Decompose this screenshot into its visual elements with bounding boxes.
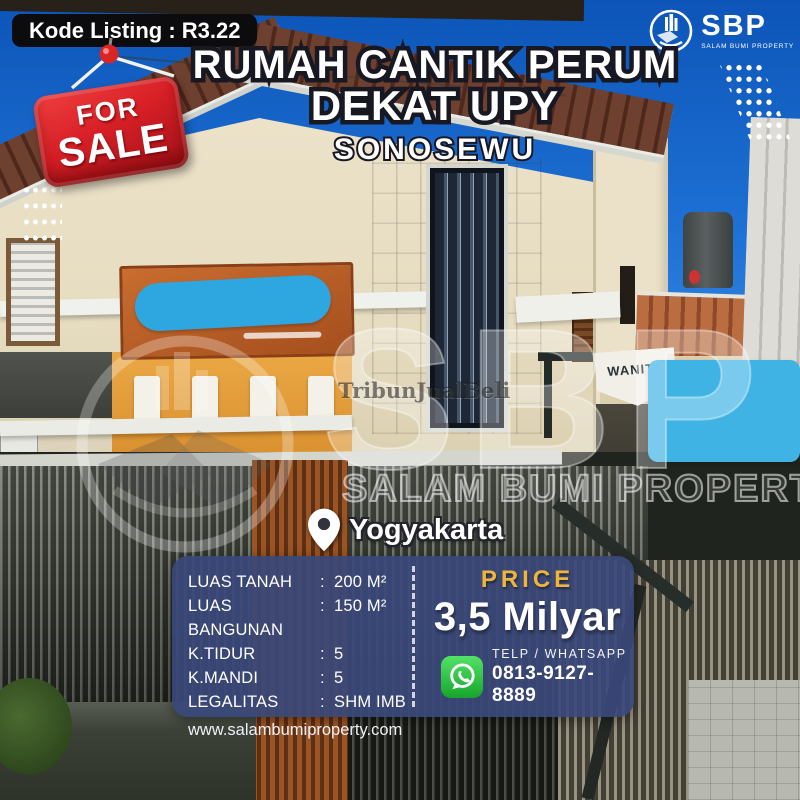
flyer-heading: RUMAH CANTIK PERUMRUMAH CANTIK PERUM DEK… [110,44,760,166]
spec-label: LUAS TANAH [188,570,320,594]
contact-row: TELP / WHATSAPP 0813-9127-8889 [441,647,628,707]
spec-row-k-mandi: K.MANDI:5 [188,666,410,690]
price-column: PRICE 3,5 Milyar TELP / WHATSAPP [417,556,634,717]
listing-info-panel: LUAS TANAH:200 M² LUAS BANGUNAN:150 M² K… [172,556,634,717]
map-pin-icon [308,508,340,552]
spec-label: LUAS BANGUNAN [188,594,320,642]
contact-label: TELP / WHATSAPP [492,647,628,661]
title-line1: RUMAH CANTIK PERUM [193,44,678,86]
specs-column: LUAS TANAH:200 M² LUAS BANGUNAN:150 M² K… [172,556,410,717]
spec-value: 5 [334,666,410,690]
water-tank-grey [683,212,733,288]
subtitle: SONOSEWU [334,134,536,166]
spec-colon: : [320,570,334,594]
spec-value: 5 [334,642,410,666]
floor-tiles [688,680,800,800]
property-flyer: WANITA SBP SALAM BUMI PROPERTY TribunJua… [0,0,800,800]
spec-label: LEGALITAS [188,690,320,714]
house-left-window [6,238,60,346]
spec-colon: : [320,666,334,690]
spec-value: 150 M² [334,594,410,642]
title-line1-wrap: RUMAH CANTIK PERUMRUMAH CANTIK PERUM [193,44,678,86]
spec-colon: : [320,594,334,642]
tribun-watermark: TribunJualBeli [338,378,510,403]
water-tank-label [689,270,700,284]
spec-label: K.MANDI [188,666,320,690]
spec-row-legalitas: LEGALITAS:SHM IMB [188,690,410,714]
spec-value: SHM IMB [334,690,410,714]
contact-texts: TELP / WHATSAPP 0813-9127-8889 [492,647,628,707]
price-label: PRICE [427,566,628,594]
subtitle-wrap: SONOSEWUSONOSEWU [334,134,536,166]
panel-divider [412,566,415,707]
spec-value: 200 M² [334,570,410,594]
title-line2: DEKAT UPY [311,84,560,128]
location-row: Yogyakarta [308,508,503,552]
spec-label: K.TIDUR [188,642,320,666]
spec-colon: : [320,690,334,714]
sbp-logo-name: SBP [701,12,794,41]
website-url: www.salambumiproperty.com [188,721,410,740]
spec-colon: : [320,642,334,666]
sbp-emblem-watermark-icon [60,322,310,568]
location-city: Yogyakarta [349,514,503,547]
price-value: 3,5 Milyar [427,596,628,638]
spec-row-luas-bangunan: LUAS BANGUNAN:150 M² [188,594,410,642]
whatsapp-icon [441,656,483,698]
contact-phone: 0813-9127-8889 [492,663,628,707]
salam-bumi-watermark: SALAM BUMI PROPERTY [342,468,800,511]
spec-row-luas-tanah: LUAS TANAH:200 M² [188,570,410,594]
title-line2-wrap: DEKAT UPYDEKAT UPY [311,84,560,128]
spec-row-k-tidur: K.TIDUR:5 [188,642,410,666]
